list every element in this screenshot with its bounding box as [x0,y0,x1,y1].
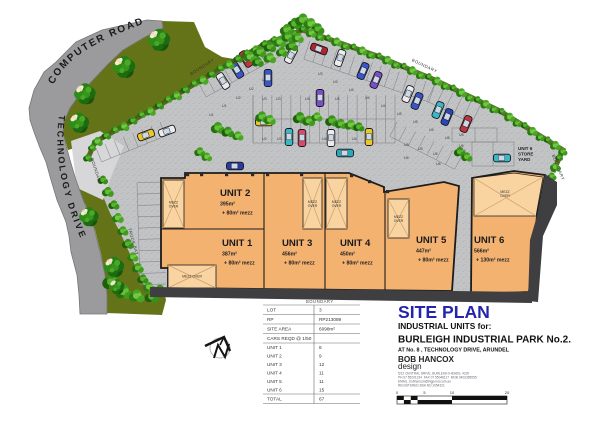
svg-text:3: 3 [319,308,322,313]
svg-text:U5: U5 [413,120,418,124]
svg-text:MEZZ OVER: MEZZ OVER [182,275,202,279]
svg-text:UNIT 5: UNIT 5 [267,379,282,384]
svg-text:U3: U3 [262,97,267,101]
svg-text:11: 11 [319,371,324,376]
svg-text:OVER: OVER [169,205,179,209]
svg-text:TOTAL: TOTAL [267,397,282,402]
svg-text:OVER: OVER [394,219,404,223]
svg-text:SITE AREA: SITE AREA [267,327,292,332]
svg-text:10: 10 [450,390,455,395]
svg-text:20: 20 [505,390,510,395]
svg-text:OVER: OVER [500,194,510,198]
svg-text:U5: U5 [397,112,402,116]
svg-text:566m²: 566m² [474,249,489,255]
svg-text:8: 8 [319,345,322,350]
svg-text:U5: U5 [418,147,423,151]
svg-text:RP213089: RP213089 [319,317,342,322]
svg-text:design: design [398,362,422,371]
svg-text:UNIT 6: UNIT 6 [518,146,533,151]
svg-text:AT No. 8 , TECHNOLOGY DRIVE, A: AT No. 8 , TECHNOLOGY DRIVE, ARUNDEL [398,348,510,354]
svg-text:U5: U5 [429,128,434,132]
svg-text:OVER: OVER [332,204,342,208]
svg-text:U3: U3 [277,137,282,141]
svg-text:12: 12 [319,362,325,367]
svg-text:U2: U2 [249,87,254,91]
svg-text:UNIT 4: UNIT 4 [340,238,371,249]
svg-text:U4: U4 [305,97,310,101]
svg-text:+ 80m² mezz: + 80m² mezz [342,261,373,267]
svg-text:U4: U4 [335,97,340,101]
svg-text:447m²: 447m² [416,249,431,255]
svg-text:U3: U3 [333,80,338,84]
svg-text:+ 80m² mezz: + 80m² mezz [418,258,449,264]
svg-text:U1: U1 [209,113,214,117]
svg-text:U4: U4 [352,137,357,141]
svg-text:+ 80m² mezz: + 80m² mezz [224,261,255,267]
svg-text:OVER: OVER [308,204,318,208]
svg-text:UNIT 2: UNIT 2 [267,354,282,359]
svg-text:LOT: LOT [267,308,276,313]
svg-text:BURLEIGH INDUSTRIAL PARK No.2.: BURLEIGH INDUSTRIAL PARK No.2. [398,335,571,346]
svg-text:U6: U6 [404,156,409,160]
svg-text:UNIT 5: UNIT 5 [416,235,447,246]
svg-text:U4: U4 [349,88,354,92]
svg-text:15: 15 [319,388,325,393]
svg-text:YARD: YARD [518,157,531,162]
svg-text:U5: U5 [433,152,438,156]
svg-text:UNIT 1: UNIT 1 [267,345,282,350]
svg-text:UNIT 3: UNIT 3 [282,238,312,249]
svg-text:U2: U2 [236,96,241,100]
svg-text:STORE: STORE [518,152,533,157]
svg-text:CARS REQD @ 1/50: CARS REQD @ 1/50 [267,336,312,341]
svg-text:395m²: 395m² [220,202,235,208]
svg-text:387m²: 387m² [222,252,237,258]
svg-text:6098m²: 6098m² [319,327,335,332]
svg-text:U4: U4 [322,137,327,141]
svg-text:INDUSTRIAL UNITS for:: INDUSTRIAL UNITS for: [398,321,491,331]
svg-text:U6: U6 [445,136,450,140]
svg-text:9: 9 [319,354,322,359]
svg-text:450m²: 450m² [340,252,355,258]
svg-text:UNIT 2: UNIT 2 [220,188,250,199]
svg-text:UNIT 4: UNIT 4 [267,371,282,376]
svg-text:67: 67 [319,397,325,402]
svg-text:UNIT 3: UNIT 3 [267,362,282,367]
svg-text:U6: U6 [459,133,464,137]
svg-text:RP: RP [267,317,274,322]
svg-text:UNIT 6: UNIT 6 [267,388,282,393]
svg-text:+ 80m² mezz: + 80m² mezz [222,211,253,217]
svg-text:+ 80m² mezz: + 80m² mezz [284,261,315,267]
svg-text:U3: U3 [318,72,323,76]
svg-text:U6: U6 [436,162,441,166]
svg-text:456m²: 456m² [282,252,297,258]
svg-text:UNIT 6: UNIT 6 [474,235,504,246]
svg-text:+ 130m² mezz: + 130m² mezz [476,258,510,264]
svg-text:U4: U4 [381,104,386,108]
svg-text:U3: U3 [276,97,281,101]
svg-text:11: 11 [319,379,324,384]
svg-text:U1: U1 [222,104,227,108]
svg-text:U2: U2 [262,137,267,141]
svg-text:UNIT 1: UNIT 1 [222,238,253,249]
svg-text:SITE PLAN: SITE PLAN [398,302,490,322]
svg-text:U5: U5 [404,143,409,147]
svg-text:REGISTERED BSA NO 1054321: REGISTERED BSA NO 1054321 [398,384,445,388]
svg-text:U4: U4 [365,96,370,100]
